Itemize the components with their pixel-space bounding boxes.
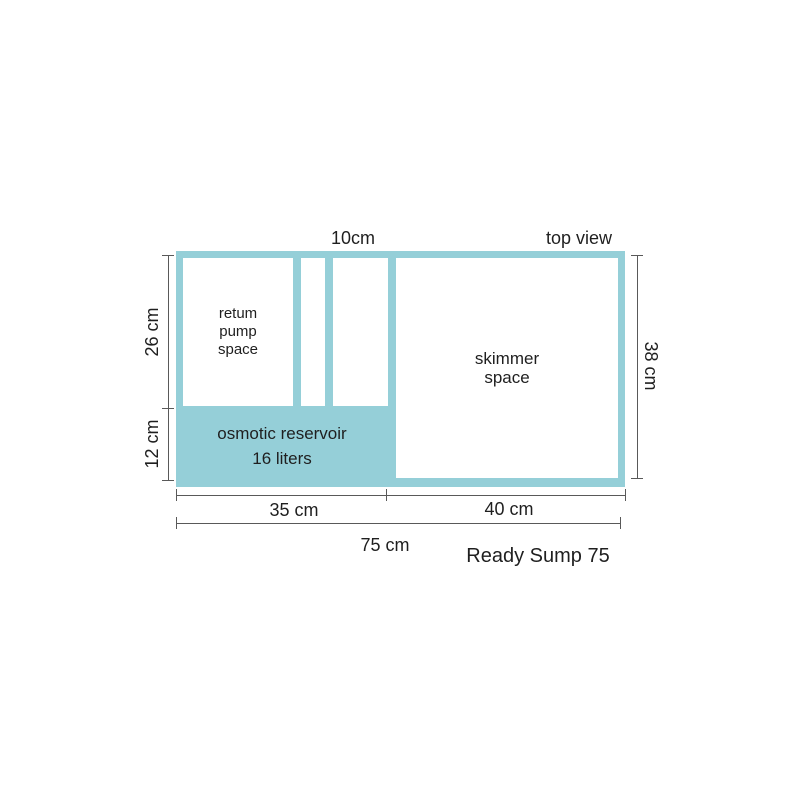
- tick-mark: [620, 517, 621, 529]
- tick-mark: [625, 489, 626, 501]
- dimension-line-bottom-total: [176, 523, 620, 524]
- dimension-line-left: [168, 255, 169, 480]
- baffle-channel-10cm: [333, 258, 388, 406]
- skimmer-label: skimmer space: [475, 349, 539, 387]
- sump-tank-top-view: retum pump space skimmer space osmotic r…: [176, 251, 625, 487]
- return-pump-label: retum pump space: [218, 305, 258, 359]
- osmotic-reservoir-compartment: osmotic reservoir 16 liters: [176, 406, 388, 487]
- dimension-line-bottom-split: [176, 495, 625, 496]
- tick-mark: [631, 478, 643, 479]
- sump-diagram: 10cm top view Ready Sump 75 retum pump s…: [0, 0, 800, 800]
- dimension-label-left-upper: 26 cm: [143, 302, 161, 362]
- reservoir-volume-label: 16 liters: [252, 450, 312, 468]
- return-pump-compartment: retum pump space: [183, 258, 293, 406]
- product-name-label: Ready Sump 75: [438, 546, 638, 567]
- tick-mark: [162, 480, 174, 481]
- baffle-channel-narrow: [301, 258, 325, 406]
- tick-mark: [162, 408, 174, 409]
- tick-mark: [176, 517, 177, 529]
- tick-mark: [386, 489, 387, 501]
- tick-mark: [162, 255, 174, 256]
- reservoir-name-label: osmotic reservoir: [217, 425, 346, 443]
- dimension-label-right-height: 38 cm: [642, 336, 660, 396]
- dimension-label-bottom-left: 35 cm: [244, 501, 344, 519]
- skimmer-compartment: skimmer space: [396, 258, 618, 478]
- dimension-label-channel-width: 10cm: [303, 228, 403, 249]
- tick-mark: [631, 255, 643, 256]
- dimension-line-right: [637, 255, 638, 478]
- dimension-label-bottom-total: 75 cm: [335, 536, 435, 554]
- view-label: top view: [529, 228, 629, 249]
- dimension-label-bottom-right: 40 cm: [459, 500, 559, 518]
- dimension-label-left-lower: 12 cm: [143, 414, 161, 474]
- tick-mark: [176, 489, 177, 501]
